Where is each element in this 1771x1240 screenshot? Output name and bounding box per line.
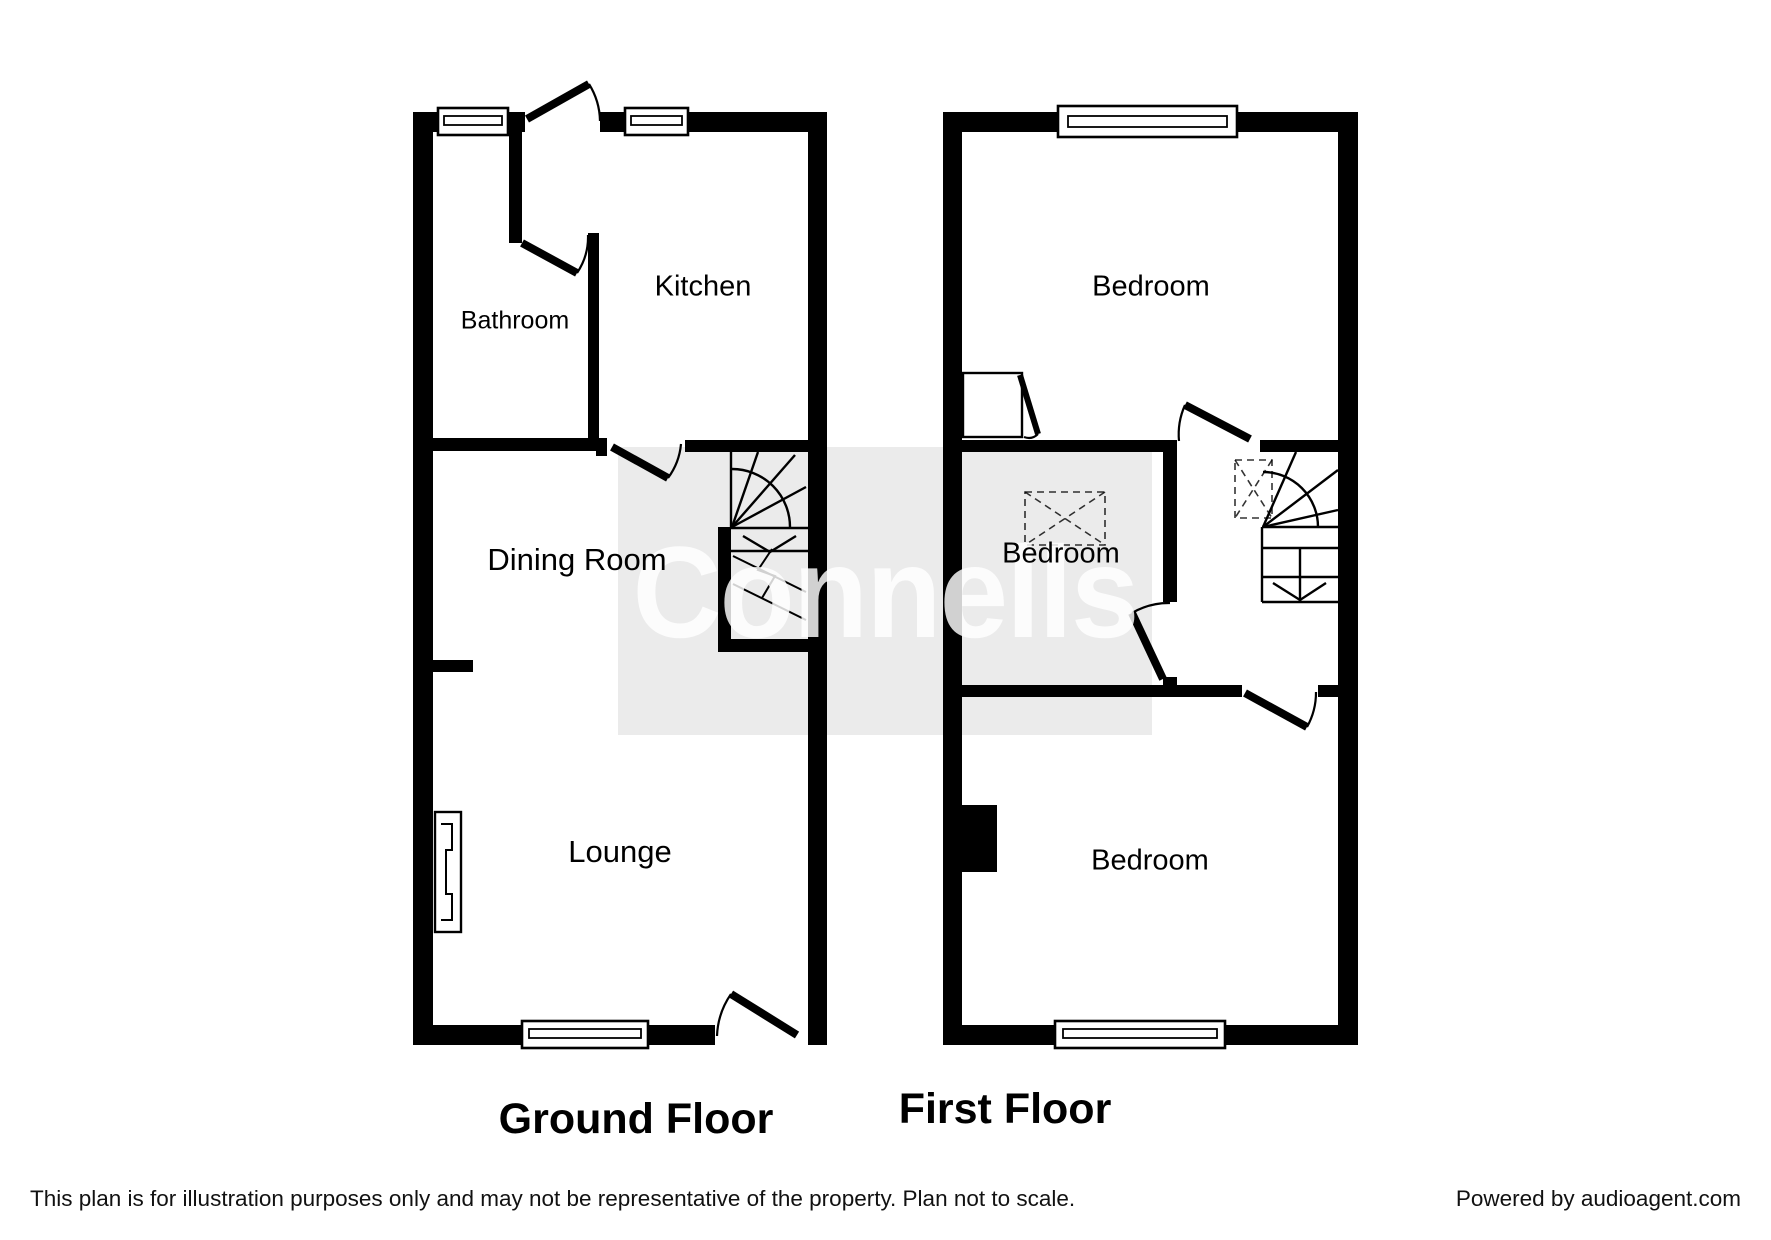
room-label-bathroom: Bathroom: [461, 307, 569, 336]
window: [1055, 1021, 1225, 1048]
window: [625, 108, 688, 135]
disclaimer-text: This plan is for illustration purposes o…: [30, 1186, 1075, 1212]
room-label-kitchen: Kitchen: [655, 271, 752, 304]
chimney-breast: [962, 805, 997, 872]
ground-floor-title: Ground Floor: [499, 1095, 774, 1144]
first-floor-title: First Floor: [899, 1085, 1112, 1134]
fireplace: [435, 812, 461, 932]
loft-hatch: [1235, 460, 1272, 518]
staircase-first: [1262, 452, 1338, 602]
top-bedroom-door: [1179, 405, 1250, 441]
room-label-lounge: Lounge: [568, 834, 671, 870]
room-label-bedroom-top: Bedroom: [1092, 271, 1210, 304]
room-label-bedroom-middle: Bedroom: [1002, 538, 1120, 571]
window: [1058, 106, 1237, 137]
bottom-bedroom-door: [1245, 692, 1316, 727]
floorplan-drawing: Connells: [0, 0, 1771, 1240]
credit-text: Powered by audioagent.com: [1456, 1186, 1741, 1212]
watermark: Connells: [618, 447, 1152, 735]
bathroom-door: [522, 235, 588, 273]
window: [522, 1021, 648, 1048]
window: [438, 108, 508, 135]
entry-door: [527, 84, 600, 121]
room-label-bedroom-bottom: Bedroom: [1091, 845, 1209, 878]
room-label-dining-room: Dining Room: [487, 542, 666, 578]
front-door: [717, 994, 797, 1036]
floorplan-page: Connells Bathroom Kitchen Dining Room Lo…: [0, 0, 1771, 1240]
cupboard: [963, 373, 1038, 438]
